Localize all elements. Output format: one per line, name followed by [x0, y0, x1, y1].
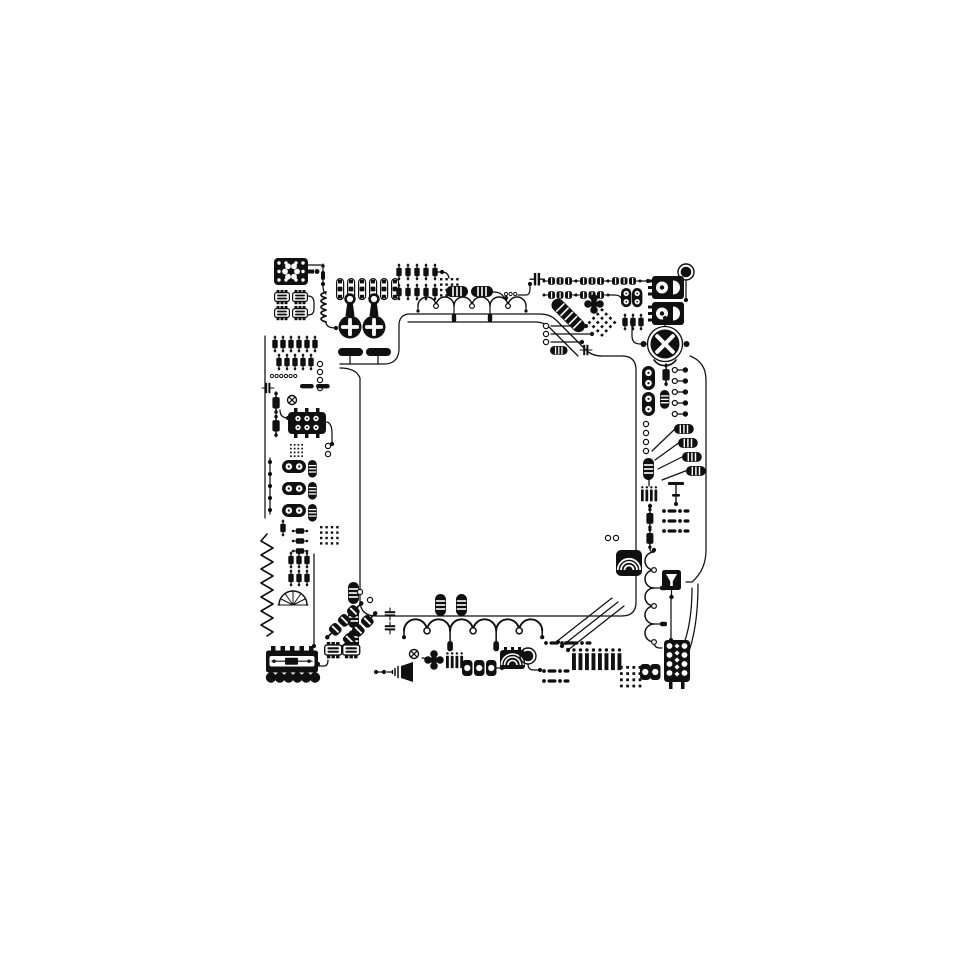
component-dot-grid — [620, 666, 641, 687]
component-ring-dot — [672, 367, 688, 372]
component-pill-striped-h — [678, 438, 698, 448]
component-eight-h — [282, 460, 306, 473]
component-ring — [643, 430, 648, 435]
component-pin-pill — [381, 279, 388, 300]
component-ring — [317, 377, 322, 382]
component-pill-striped-h — [550, 346, 568, 355]
wire-trace — [658, 456, 684, 469]
component-ic-halfmoon — [648, 276, 684, 299]
component-ring — [317, 369, 322, 374]
component-res-v — [276, 354, 281, 370]
junction-dot — [440, 270, 444, 274]
component-ring-dot — [672, 400, 688, 405]
component-res-v — [288, 570, 293, 586]
component-dot — [268, 472, 272, 476]
component-x-ring — [288, 396, 297, 405]
component-res-v — [296, 570, 301, 586]
junction-dot — [566, 648, 570, 652]
junction-dot — [374, 670, 378, 674]
component-ic-small — [325, 642, 342, 658]
junction-dot — [316, 662, 320, 666]
component-cap-h — [262, 383, 274, 393]
component-res-v — [272, 415, 279, 437]
component-ic-small — [293, 290, 308, 304]
component-dot — [268, 496, 272, 500]
component-dash-dot-row — [662, 519, 689, 523]
circuit-layer — [261, 258, 706, 689]
component-res-v — [405, 264, 410, 280]
component-oval-unit — [474, 660, 485, 676]
component-connector — [266, 646, 320, 683]
component-key-cross — [339, 295, 362, 339]
junction-dot — [663, 316, 667, 320]
component-eight-v — [642, 392, 655, 416]
component-clover5 — [424, 650, 444, 670]
component-eight-v — [642, 366, 655, 390]
wire-trace — [662, 470, 688, 480]
wire-trace — [632, 324, 647, 344]
component-diode-chain — [543, 291, 578, 299]
junction-dot — [330, 442, 334, 446]
component-ring-dot — [672, 411, 688, 416]
component-ring — [357, 589, 362, 594]
wire-trace — [308, 296, 314, 315]
component-ring — [643, 448, 648, 453]
component-pill-striped-h — [471, 286, 493, 297]
component-ring — [543, 331, 548, 336]
component-res-v — [646, 528, 653, 549]
component-pill-striped-h — [446, 286, 468, 297]
junction-dot — [684, 298, 688, 302]
component-res-v — [622, 314, 627, 330]
junction-dot — [584, 324, 588, 328]
component-res-v — [272, 392, 279, 414]
component-ring — [367, 597, 372, 602]
component-oval-unit — [650, 664, 661, 680]
junction-dot — [669, 638, 673, 642]
junction-dot — [528, 282, 532, 286]
component-res-v — [292, 528, 308, 533]
junction-dot — [286, 416, 290, 420]
component-ring — [325, 443, 330, 448]
junction-dot — [630, 320, 634, 324]
component-arc-box — [500, 647, 525, 669]
junction-dot — [500, 666, 504, 670]
component-big-dot — [678, 264, 694, 280]
component-res-v — [308, 354, 313, 370]
wire-trace — [562, 602, 618, 646]
component-res-v — [638, 314, 643, 330]
component-res-v — [405, 284, 410, 300]
component-res-v — [292, 354, 297, 370]
component-dot — [268, 508, 272, 512]
component-bar-h — [316, 384, 330, 388]
component-res-v — [292, 538, 308, 543]
component-pill-striped-h — [682, 452, 702, 462]
component-res-v — [304, 570, 309, 586]
component-pill-striped-v — [308, 504, 317, 522]
component-coo — [270, 374, 282, 377]
component-diode-chain — [575, 277, 610, 285]
component-zigzag-v — [261, 534, 273, 636]
wire-trace — [326, 422, 332, 444]
component-coo — [284, 374, 296, 377]
component-res-v — [284, 354, 289, 370]
component-stripes-v — [446, 652, 463, 668]
component-ic-halfmoon — [648, 302, 684, 325]
component-ring-dot — [672, 389, 688, 394]
component-res-v — [292, 548, 308, 553]
component-pill-striped-h — [674, 424, 694, 434]
component-res-v — [296, 336, 301, 352]
component-pill-striped-v — [660, 390, 669, 409]
component-res-v — [662, 364, 669, 386]
component-res-v — [396, 264, 401, 280]
component-pin-pill — [337, 279, 344, 300]
component-ring — [643, 439, 648, 444]
component-pill-striped-v — [643, 458, 654, 480]
component-semicircle-fan — [278, 591, 308, 605]
component-wave6 — [416, 297, 527, 322]
component-ring — [325, 451, 330, 456]
wire-trace — [556, 598, 612, 642]
page-background — [0, 0, 960, 960]
junction-dot — [312, 644, 316, 648]
component-dash-dot-row — [542, 679, 569, 683]
component-bar-h — [300, 384, 314, 388]
component-cap-t — [668, 482, 684, 506]
component-res-v — [296, 552, 301, 568]
component-res-v — [280, 520, 285, 536]
component-res-v — [304, 552, 309, 568]
component-ring — [317, 361, 322, 366]
junction-dot — [560, 644, 564, 648]
component-ring — [543, 323, 548, 328]
component-pill-striped-v — [435, 594, 446, 616]
component-eight-h — [282, 482, 306, 495]
component-ic-small — [275, 290, 290, 304]
component-dash-dot-row — [662, 529, 689, 533]
component-x-ring — [410, 650, 419, 659]
component-ic-flower — [274, 258, 320, 285]
junction-dot — [334, 326, 338, 330]
component-pill-striped-v — [456, 594, 467, 616]
component-res-v — [414, 284, 419, 300]
component-oval-unit — [486, 660, 497, 676]
component-dot — [382, 670, 386, 674]
component-ring — [605, 535, 610, 540]
component-dot-grid — [320, 526, 339, 545]
junction-dot — [538, 668, 542, 672]
component-res-v — [304, 336, 309, 352]
component-oval-unit — [640, 664, 651, 680]
component-diode-chain — [607, 277, 642, 285]
component-ring — [543, 339, 548, 344]
component-eight-v — [621, 288, 631, 307]
component-eight-v — [632, 288, 642, 307]
component-bar-h — [338, 348, 363, 356]
component-res-v — [272, 336, 277, 352]
component-res-v — [423, 264, 428, 280]
junction-dot — [321, 282, 325, 286]
component-bar-h — [366, 348, 391, 356]
component-ic-small — [275, 306, 290, 320]
component-funnel-ic — [662, 570, 681, 599]
component-diag-cable — [549, 296, 588, 335]
component-dash-dot-row — [542, 669, 569, 673]
component-relay-h — [288, 408, 326, 438]
component-ic-small — [343, 642, 360, 658]
circuit-frame-illustration — [256, 252, 712, 700]
component-dot — [268, 484, 272, 488]
component-coil-v — [321, 292, 326, 322]
junction-dot — [580, 340, 584, 344]
component-wave5v — [645, 552, 667, 644]
component-key-cross — [363, 295, 386, 339]
component-res-v — [312, 336, 317, 352]
component-diode-chain — [543, 277, 578, 285]
component-cap-h — [385, 608, 395, 620]
junction-dot — [504, 296, 508, 300]
component-cap-h — [530, 273, 544, 285]
component-stripes-v — [572, 648, 595, 670]
junction-dot — [646, 279, 650, 283]
component-dash-dot-row — [662, 509, 689, 513]
component-eight-h — [282, 504, 306, 517]
component-shell — [616, 550, 642, 576]
wire-trace — [608, 295, 621, 298]
junction-dot — [556, 640, 560, 644]
component-res-v — [414, 264, 419, 280]
component-res-v — [646, 508, 653, 529]
junction-dot — [652, 548, 656, 552]
component-pill-striped-v — [308, 482, 317, 500]
component-res-v — [300, 354, 305, 370]
component-pill-striped-h — [686, 466, 706, 476]
wire-trace — [518, 284, 530, 295]
component-pill-striped-v — [308, 460, 317, 478]
component-coo — [504, 292, 516, 295]
component-oval-unit — [462, 660, 473, 676]
component-pin-pill — [359, 279, 366, 300]
component-dot — [268, 460, 272, 464]
junction-dot — [590, 332, 594, 336]
component-res-v — [288, 336, 293, 352]
component-ring-dot — [672, 378, 688, 383]
component-res-v — [432, 264, 437, 280]
component-dot-grid — [290, 444, 303, 457]
component-big-x — [641, 327, 690, 366]
wire-trace — [340, 314, 636, 616]
component-wave6 — [402, 619, 544, 651]
component-cap-h — [385, 622, 395, 634]
component-ring — [613, 535, 618, 540]
component-res-v — [280, 336, 285, 352]
component-res-v — [432, 284, 437, 300]
component-ic-small — [293, 306, 308, 320]
component-stripes-v — [641, 486, 657, 501]
component-ring — [643, 421, 648, 426]
junction-dot — [648, 504, 652, 508]
component-stripes-v — [598, 648, 621, 670]
component-horn — [387, 662, 413, 682]
component-res-v — [288, 552, 293, 568]
component-relay-v — [664, 640, 690, 689]
